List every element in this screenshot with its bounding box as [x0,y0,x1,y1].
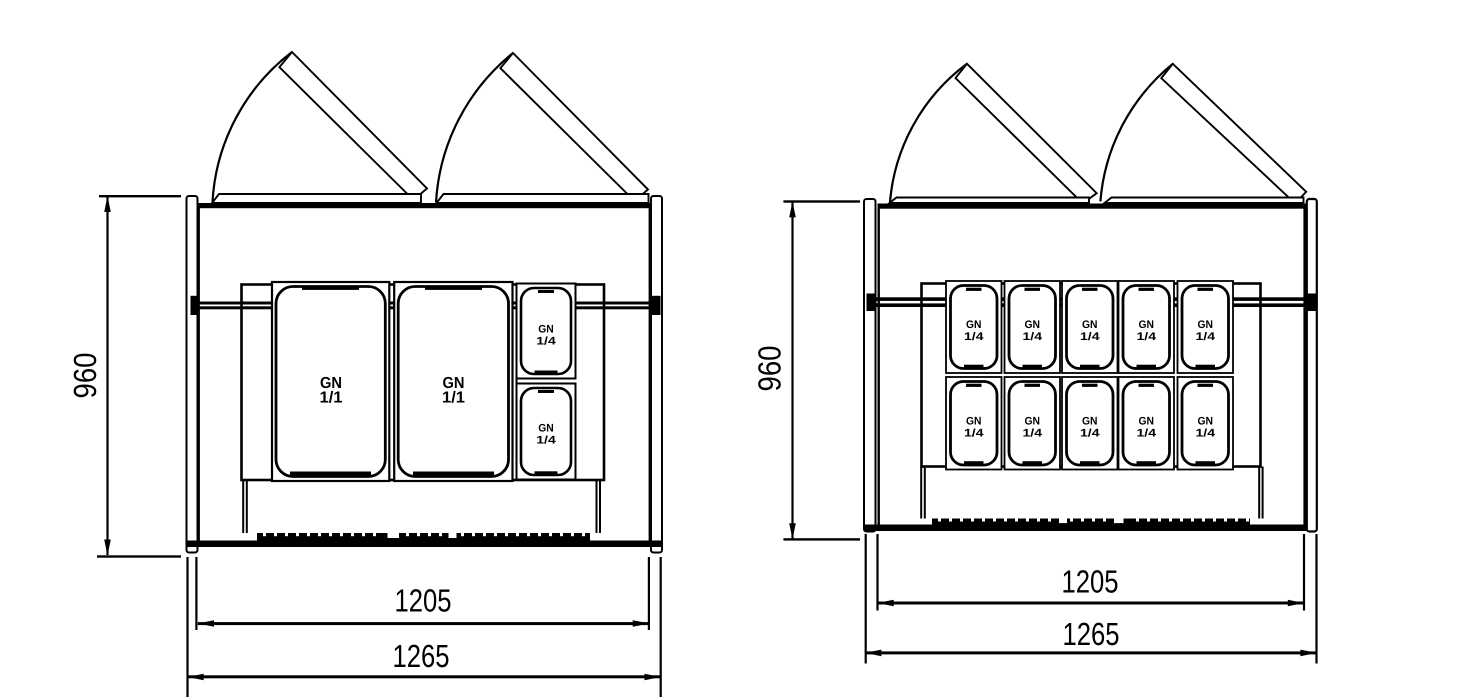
svg-text:GN: GN [1082,415,1098,427]
svg-text:1205: 1205 [395,583,452,619]
svg-text:1/4: 1/4 [964,427,985,439]
svg-text:GN: GN [1025,415,1041,427]
svg-text:1/4: 1/4 [1080,427,1101,439]
svg-text:GN: GN [538,324,554,336]
svg-text:1/4: 1/4 [1023,331,1044,343]
svg-text:GN: GN [966,319,982,331]
svg-text:GN: GN [1139,415,1155,427]
svg-text:GN: GN [538,423,554,435]
svg-text:1265: 1265 [393,638,450,674]
svg-text:960: 960 [67,353,103,399]
svg-text:GN: GN [1025,319,1041,331]
svg-text:GN: GN [1198,415,1214,427]
svg-text:1/4: 1/4 [536,336,557,348]
svg-text:1/4: 1/4 [1023,427,1044,439]
svg-text:GN: GN [966,415,982,427]
svg-text:1/4: 1/4 [1137,427,1158,439]
svg-text:GN: GN [1198,319,1214,331]
svg-text:960: 960 [752,346,788,392]
svg-text:1/1: 1/1 [442,390,465,407]
svg-text:1/4: 1/4 [1196,331,1217,343]
svg-text:1/4: 1/4 [1196,427,1217,439]
svg-text:GN: GN [1082,319,1098,331]
svg-text:1265: 1265 [1063,616,1120,652]
svg-text:1205: 1205 [1062,564,1119,600]
svg-text:1/4: 1/4 [1137,331,1158,343]
svg-text:1/4: 1/4 [1080,331,1101,343]
svg-text:1/4: 1/4 [964,331,985,343]
svg-text:GN: GN [1139,319,1155,331]
svg-text:1/1: 1/1 [320,390,343,407]
svg-text:1/4: 1/4 [536,435,557,447]
